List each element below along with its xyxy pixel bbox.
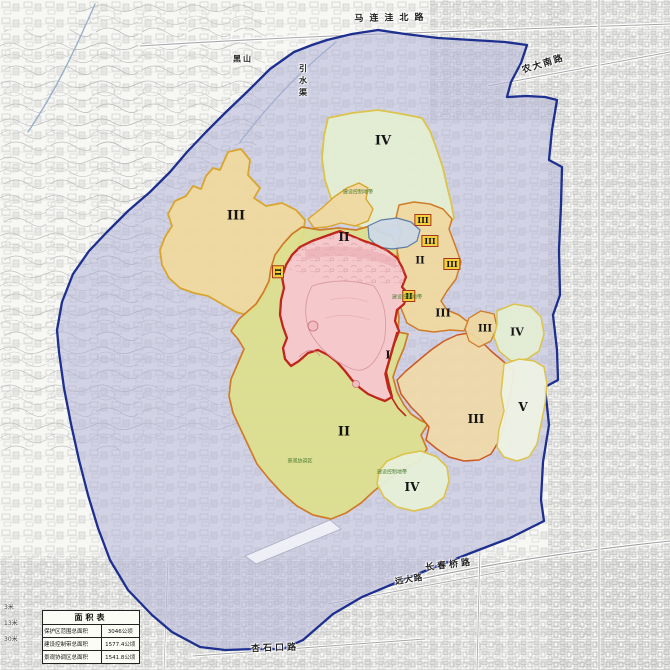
fineprint-2: 建设控制地带	[392, 296, 422, 301]
edge-mark-1: 3米	[4, 602, 14, 611]
fineprint-1: 建设控制地带	[343, 191, 373, 196]
zone-marker-iv-south: IV	[405, 480, 420, 494]
area-row-value: 1577.4公顷	[102, 638, 140, 650]
area-row-label: 景观协调区总面积	[43, 651, 102, 663]
zone-marker-iii-mid: III	[435, 307, 450, 320]
zone-marker-iii-box1: III	[414, 214, 431, 226]
area-row-label: 建设控制带总面积	[43, 638, 102, 650]
fineprint-3: 建设控制地带	[377, 471, 407, 476]
area-table-title: 面积表	[43, 611, 139, 625]
area-row-value: 3046公顷	[102, 625, 140, 637]
zone-marker-iv-east: IV	[510, 326, 524, 339]
fineprint-4: 景观协调区	[287, 460, 312, 465]
zone-marker-iii-box2: III	[421, 235, 438, 247]
edge-mark-2: 13米	[4, 618, 18, 627]
area-table: 面积表 保护区范围总面积 3046公顷 建设控制带总面积 1577.4公顷 景观…	[42, 610, 140, 664]
canal-label-yinshuiqu: 引水渠	[298, 64, 309, 100]
area-row-label: 保护区范围总面积	[43, 625, 102, 637]
zone-marker-iv-north: IV	[375, 134, 391, 149]
zone-marker-iii-box3: III	[443, 258, 460, 270]
zone-marker-ii-north: II	[338, 230, 349, 244]
area-table-row: 保护区范围总面积 3046公顷	[43, 625, 139, 638]
area-row-value: 1541.8公顷	[102, 651, 140, 663]
area-table-row: 景观协调区总面积 1541.8公顷	[43, 651, 139, 663]
zone-marker-i-strip: I	[385, 349, 390, 362]
place-label-heishan: 黑山	[233, 54, 253, 65]
edge-mark-3: 30米	[4, 634, 18, 643]
zone-marker-iii-southeast: III	[468, 412, 485, 426]
map-canvas	[0, 0, 670, 670]
area-table-row: 建设控制带总面积 1577.4公顷	[43, 638, 139, 651]
road-label-malianwa-north: 马连洼北路	[354, 10, 429, 24]
road-label-xingshikou: 杏石口路	[251, 640, 299, 655]
zone-marker-ii-east: II	[415, 256, 424, 267]
zone-marker-iii-west: III	[227, 209, 245, 224]
zone-marker-ii-south: II	[338, 425, 350, 440]
zone-marker-v: V	[518, 400, 527, 414]
zone-marker-ii-vertical-box: II	[272, 265, 284, 278]
planning-map[interactable]: IV III II III III III II II II III III I…	[0, 0, 670, 670]
zone-marker-iii-small: III	[478, 324, 492, 335]
